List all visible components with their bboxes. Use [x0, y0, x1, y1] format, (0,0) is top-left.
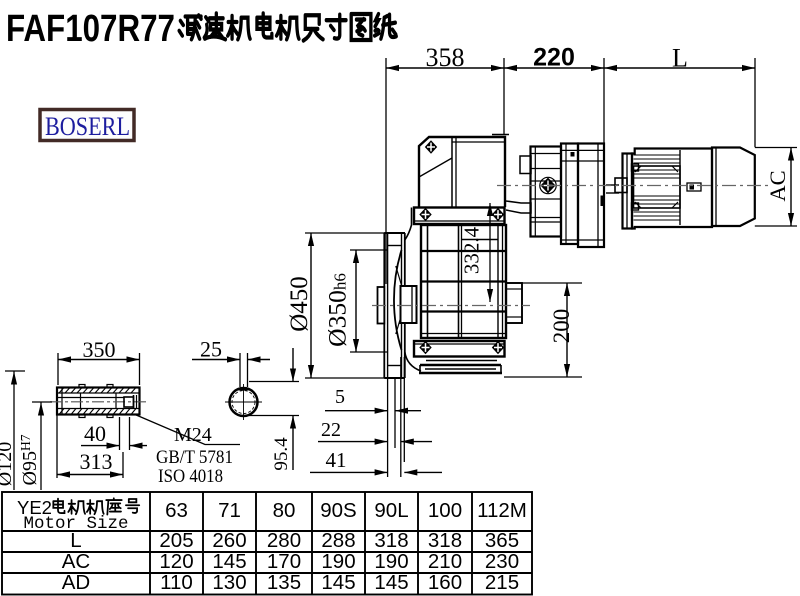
svg-text:260: 260 [212, 529, 246, 552]
svg-text:145: 145 [374, 571, 408, 594]
svg-text:120: 120 [159, 550, 193, 573]
svg-text:215: 215 [485, 571, 519, 594]
svg-text:145: 145 [212, 550, 246, 573]
svg-text:25: 25 [200, 337, 222, 362]
svg-text:80: 80 [273, 499, 296, 522]
svg-text:365: 365 [485, 529, 519, 552]
svg-text:GB/T 5781: GB/T 5781 [156, 447, 233, 468]
svg-text:63: 63 [165, 499, 188, 522]
svg-text:90S: 90S [320, 499, 356, 522]
svg-text:Ø450: Ø450 [286, 276, 313, 332]
svg-text:ISO 4018: ISO 4018 [158, 466, 223, 487]
svg-text:135: 135 [267, 571, 301, 594]
svg-text:170: 170 [267, 550, 301, 573]
svg-text:350: 350 [83, 337, 116, 362]
svg-text:313: 313 [80, 449, 113, 474]
svg-text:BOSERL: BOSERL [45, 112, 130, 141]
svg-text:220: 220 [533, 44, 575, 72]
svg-text:95.4: 95.4 [271, 437, 292, 471]
svg-text:230: 230 [485, 550, 519, 573]
svg-text:5: 5 [335, 386, 345, 408]
svg-text:190: 190 [321, 550, 355, 573]
svg-text:210: 210 [428, 550, 462, 573]
svg-text:100: 100 [428, 499, 462, 522]
svg-text:M24: M24 [174, 424, 212, 446]
svg-text:L: L [672, 44, 688, 73]
svg-text:FAF107R77: FAF107R77 [6, 8, 175, 50]
svg-text:332.4: 332.4 [460, 226, 484, 274]
svg-text:40: 40 [84, 421, 106, 446]
svg-text:22: 22 [321, 419, 341, 441]
svg-text:90L: 90L [374, 499, 408, 522]
svg-text:358: 358 [426, 43, 465, 72]
svg-text:200: 200 [549, 309, 574, 344]
svg-text:318: 318 [428, 529, 462, 552]
svg-text:280: 280 [267, 529, 301, 552]
svg-text:Ø120: Ø120 [0, 442, 16, 486]
svg-text:Ø350h6: Ø350h6 [323, 273, 352, 347]
svg-text:190: 190 [374, 550, 408, 573]
svg-text:112M: 112M [477, 499, 527, 522]
svg-text:318: 318 [374, 529, 408, 552]
svg-text:AC: AC [62, 550, 91, 573]
svg-text:160: 160 [428, 571, 462, 594]
svg-text:145: 145 [321, 571, 355, 594]
svg-text:110: 110 [160, 571, 193, 594]
svg-text:41: 41 [326, 448, 347, 472]
svg-text:205: 205 [159, 529, 193, 552]
svg-text:AC: AC [765, 170, 790, 201]
svg-text:L: L [70, 529, 81, 552]
svg-text:130: 130 [212, 571, 246, 594]
svg-text:AD: AD [62, 571, 90, 594]
svg-text:288: 288 [321, 529, 355, 552]
svg-text:Ø95H7: Ø95H7 [18, 434, 41, 485]
svg-text:71: 71 [218, 499, 241, 522]
